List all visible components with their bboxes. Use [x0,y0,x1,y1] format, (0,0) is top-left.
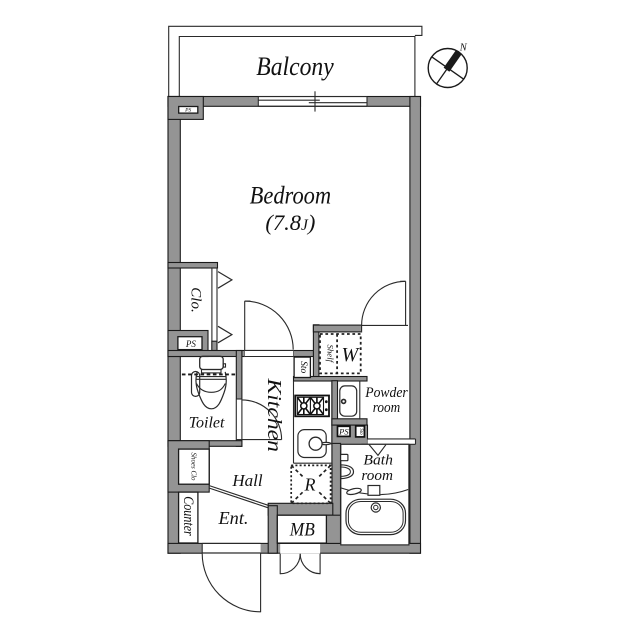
svg-text:PS: PS [184,108,191,114]
svg-text:Kitchen: Kitchen [263,377,285,452]
svg-text:(7.8J): (7.8J) [265,210,315,235]
svg-text:Bath: Bath [363,452,393,468]
svg-text:Toilet: Toilet [189,415,225,432]
svg-text:N: N [459,43,468,54]
svg-text:MB: MB [289,519,315,540]
svg-text:Sto: Sto [298,361,308,373]
svg-text:Bedroom: Bedroom [250,183,332,210]
svg-text:PS: PS [338,426,349,436]
svg-text:Sto: Sto [358,428,363,435]
svg-text:room: room [373,400,401,416]
svg-text:PS: PS [185,339,196,349]
svg-text:Powder: Powder [364,385,408,401]
svg-text:Counter: Counter [180,496,196,536]
svg-text:W: W [341,344,360,366]
svg-text:room: room [361,468,393,484]
svg-text:Clo.: Clo. [187,287,203,312]
svg-text:Balcony: Balcony [256,52,334,81]
svg-text:R: R [304,474,316,494]
svg-text:Ent.: Ent. [217,508,248,528]
svg-text:Hall: Hall [231,471,263,490]
svg-text:Shoes Clo: Shoes Clo [189,453,198,481]
svg-text:Shelf: Shelf [326,345,336,364]
